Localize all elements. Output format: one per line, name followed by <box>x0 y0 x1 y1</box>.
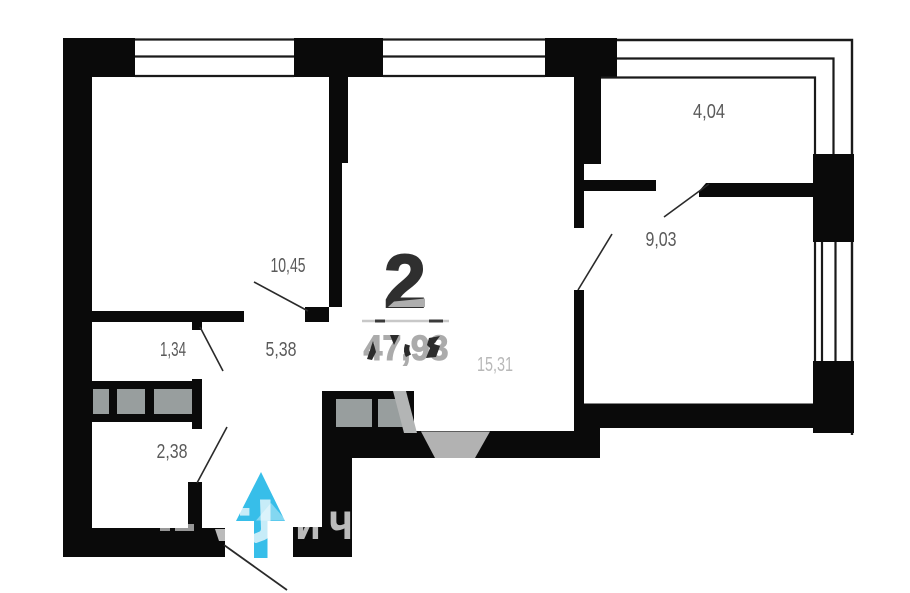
svg-text:1,34: 1,34 <box>160 339 186 361</box>
svg-text:ч: ч <box>329 493 353 551</box>
svg-text:4,04: 4,04 <box>693 101 725 123</box>
svg-text:и: и <box>295 493 321 551</box>
svg-text:2: 2 <box>384 239 426 323</box>
svg-text:9,03: 9,03 <box>646 229 677 251</box>
svg-text:5,38: 5,38 <box>266 339 297 361</box>
svg-text:15,31: 15,31 <box>477 354 513 376</box>
svg-text:2,38: 2,38 <box>157 441 188 463</box>
svg-text:10,45: 10,45 <box>271 255 306 277</box>
